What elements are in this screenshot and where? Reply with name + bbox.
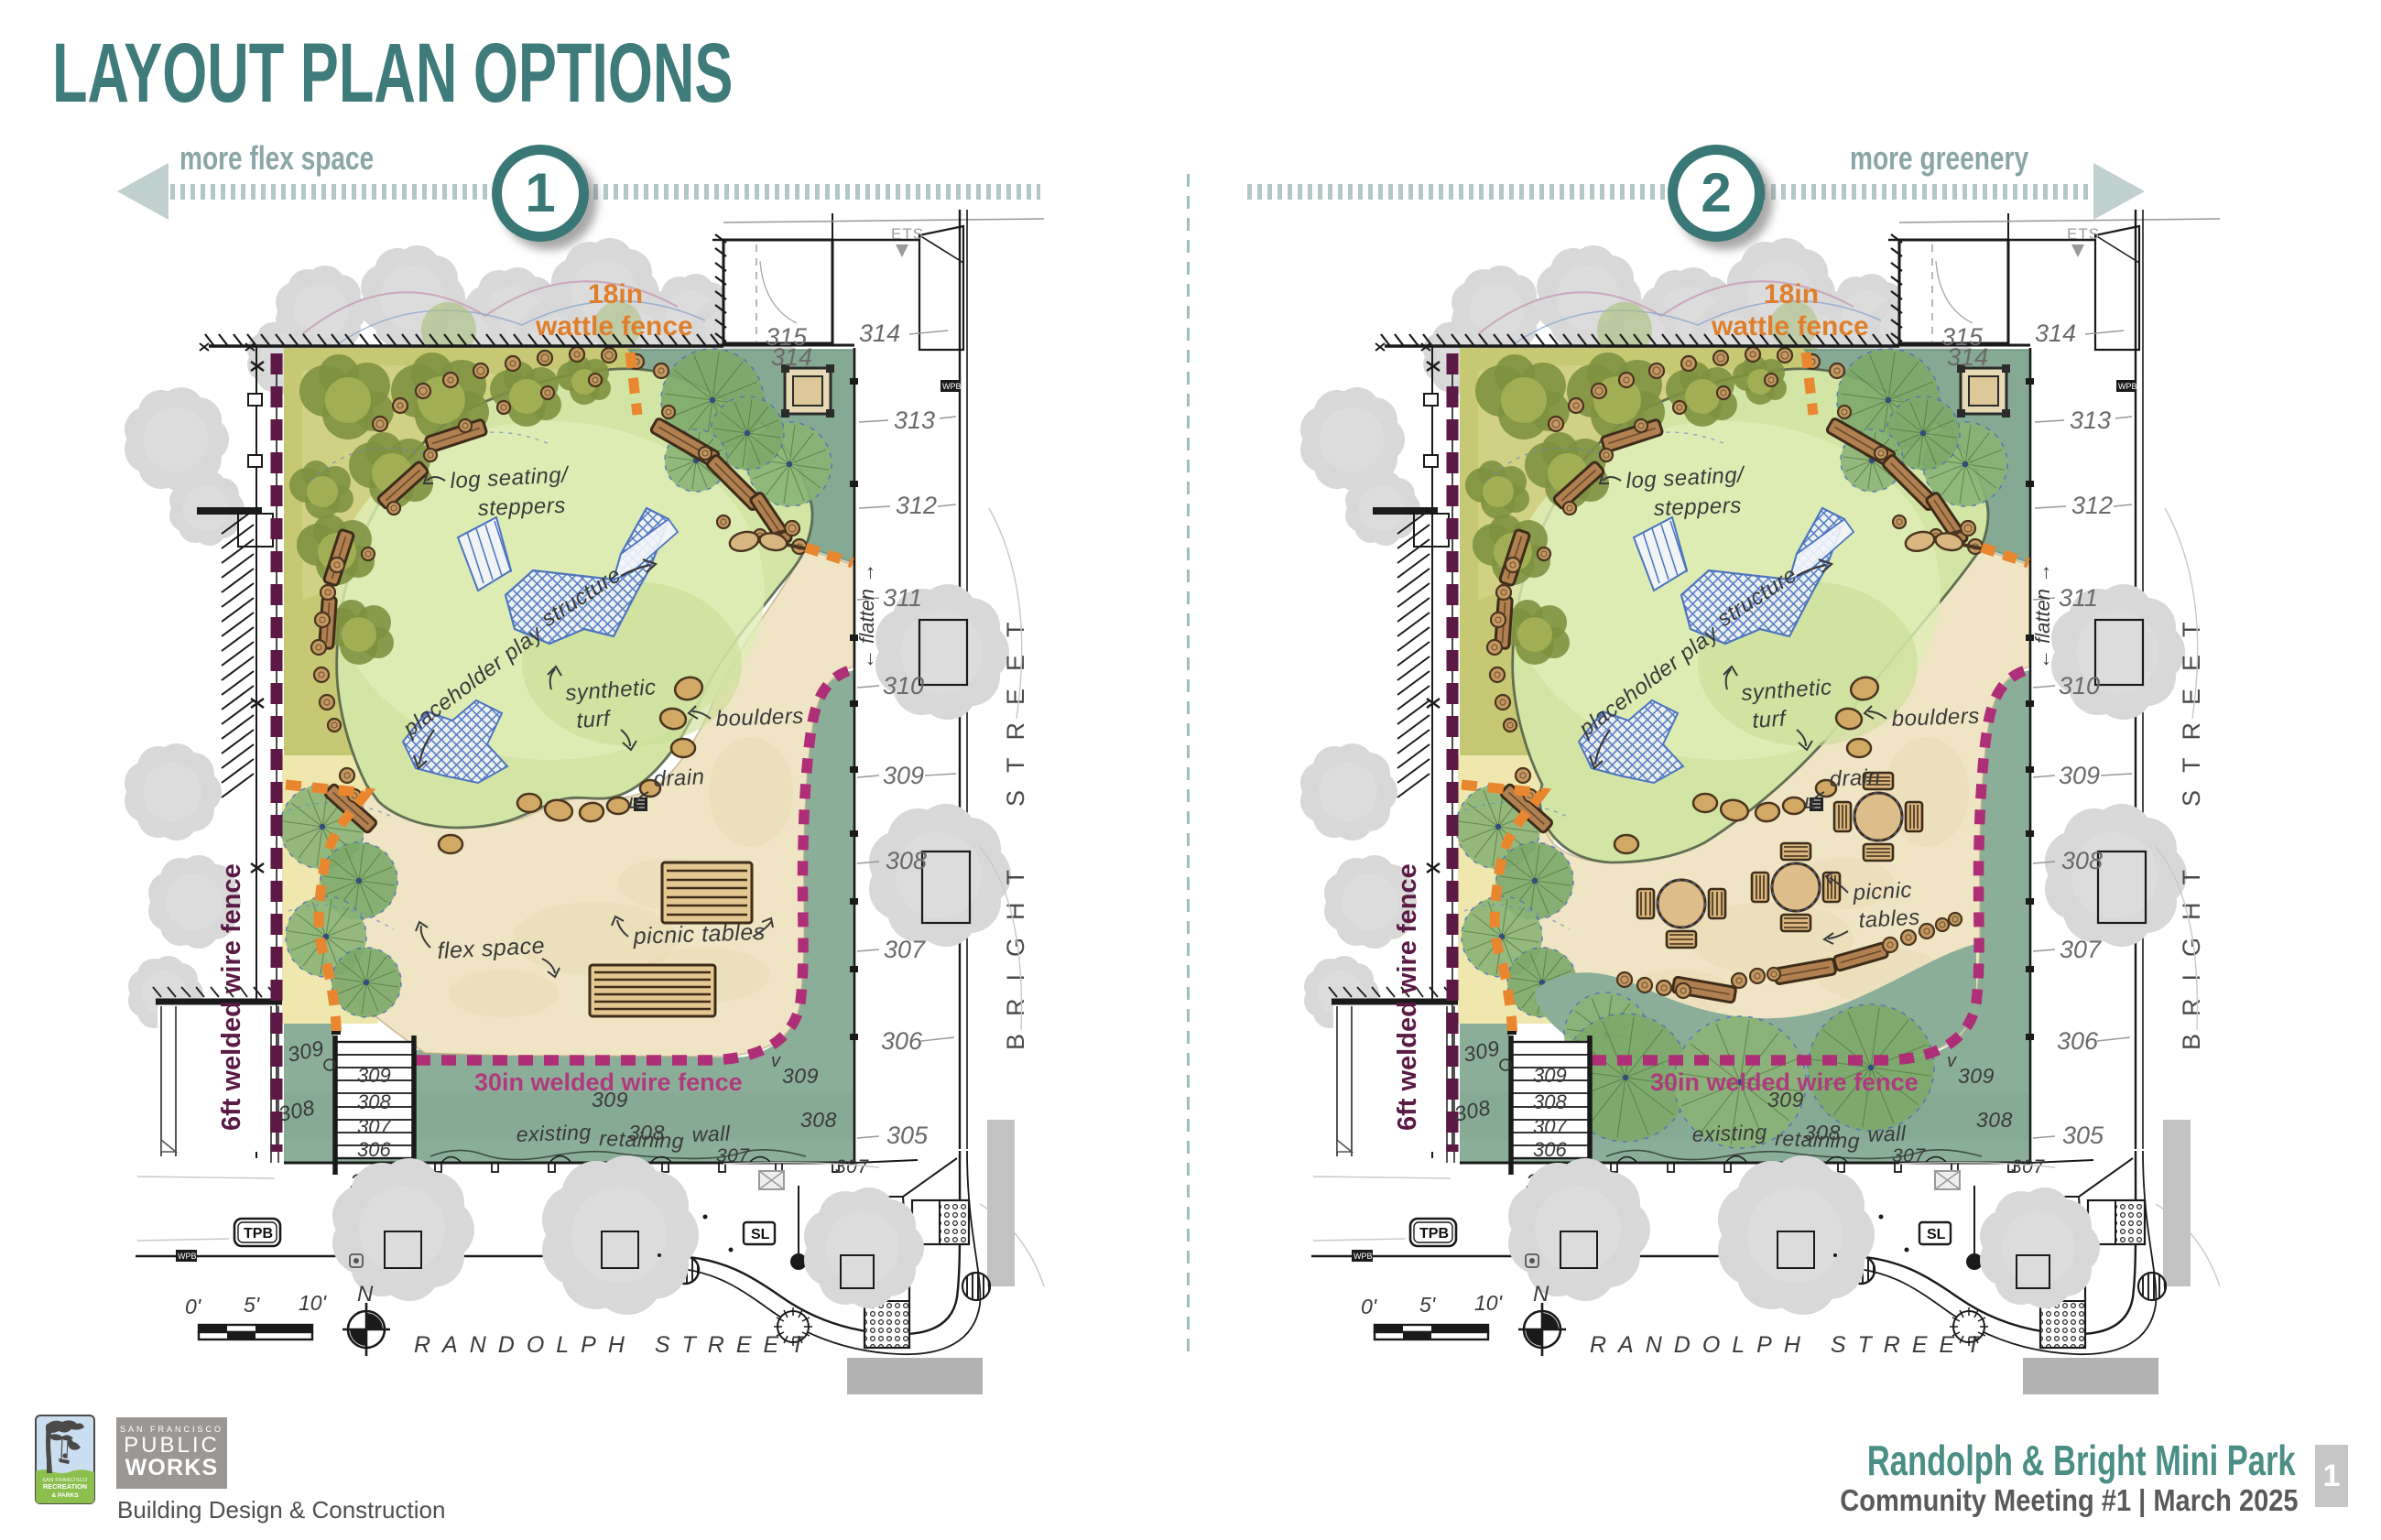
- svg-text:retaining: retaining: [1775, 1126, 1861, 1153]
- svg-text:wattle fence: wattle fence: [1711, 311, 1869, 342]
- svg-text:309: 309: [1958, 1064, 1995, 1088]
- svg-text:0': 0': [1361, 1295, 1378, 1318]
- svg-text:retaining: retaining: [599, 1126, 685, 1153]
- svg-text:turf: turf: [576, 706, 613, 733]
- svg-text:← flatten →: ← flatten →: [855, 563, 878, 669]
- svg-text:308: 308: [800, 1108, 837, 1132]
- svg-text:314: 314: [2035, 320, 2076, 347]
- svg-text:309: 309: [883, 762, 924, 789]
- svg-text:boulders: boulders: [715, 704, 804, 732]
- svg-text:BRIGHT: BRIGHT: [1002, 852, 1029, 1050]
- svg-text:306: 306: [2057, 1027, 2099, 1055]
- svg-text:WPB: WPB: [2118, 382, 2137, 391]
- svg-text:309: 309: [1533, 1064, 1567, 1087]
- svg-text:311: 311: [2059, 584, 2098, 612]
- svg-text:WPB: WPB: [178, 1252, 197, 1261]
- svg-text:steppers: steppers: [1653, 493, 1742, 521]
- svg-text:ETS: ETS: [2067, 225, 2100, 243]
- svg-text:307: 307: [884, 936, 926, 963]
- svg-text:turf: turf: [1752, 706, 1788, 733]
- svg-text:310: 310: [883, 672, 924, 700]
- svg-text:5': 5': [1419, 1293, 1437, 1317]
- svg-text:6ft welded wire fence: 6ft welded wire fence: [217, 863, 246, 1131]
- svg-text:wall: wall: [691, 1122, 731, 1146]
- svg-text:N: N: [357, 1282, 374, 1307]
- svg-text:306: 306: [1533, 1138, 1567, 1161]
- svg-text:RANDOLPH STREET: RANDOLPH STREET: [1590, 1332, 1992, 1358]
- svg-text:v: v: [1947, 1051, 1957, 1071]
- svg-text:picnic tables: picnic tables: [632, 919, 766, 949]
- svg-text:ETS: ETS: [891, 225, 924, 243]
- svg-text:wall: wall: [1867, 1122, 1907, 1146]
- svg-text:WPB: WPB: [942, 382, 962, 391]
- svg-text:STREET: STREET: [1002, 604, 1029, 807]
- svg-text:305: 305: [886, 1122, 929, 1149]
- svg-text:tables: tables: [1858, 906, 1920, 933]
- svg-text:310: 310: [2059, 672, 2100, 700]
- svg-text:wattle fence: wattle fence: [535, 311, 693, 342]
- svg-text:307: 307: [2060, 936, 2102, 963]
- svg-text:STREET: STREET: [2178, 604, 2205, 807]
- svg-text:picnic: picnic: [1852, 878, 1913, 906]
- svg-text:existing: existing: [1691, 1120, 1767, 1146]
- svg-text:& PARKS: & PARKS: [51, 1492, 79, 1499]
- svg-text:10': 10': [1474, 1291, 1504, 1315]
- svg-text:313: 313: [894, 407, 935, 434]
- svg-text:312: 312: [896, 492, 937, 519]
- svg-text:existing: existing: [516, 1120, 592, 1146]
- svg-text:309: 309: [782, 1064, 819, 1088]
- svg-text:307: 307: [2011, 1156, 2045, 1177]
- svg-text:314: 314: [1947, 343, 1988, 371]
- svg-text:← flatten →: ← flatten →: [2031, 563, 2054, 669]
- svg-text:314: 314: [771, 343, 812, 371]
- svg-text:SL: SL: [1927, 1227, 1946, 1242]
- svg-text:18in: 18in: [1764, 279, 1819, 309]
- svg-text:RECREATION: RECREATION: [43, 1482, 87, 1491]
- svg-text:0': 0': [185, 1295, 202, 1318]
- svg-text:307: 307: [357, 1115, 391, 1138]
- svg-text:18in: 18in: [588, 279, 643, 309]
- svg-text:30in welded wire fence: 30in welded wire fence: [474, 1068, 743, 1096]
- svg-text:312: 312: [2071, 492, 2113, 519]
- svg-text:WPB: WPB: [1354, 1252, 1373, 1261]
- svg-text:308: 308: [1976, 1108, 2013, 1132]
- svg-text:v: v: [771, 1051, 781, 1071]
- svg-text:309: 309: [2059, 762, 2100, 789]
- svg-text:drain: drain: [1829, 765, 1881, 792]
- svg-text:10': 10': [299, 1291, 328, 1315]
- svg-text:N: N: [1533, 1282, 1549, 1307]
- svg-text:SL: SL: [751, 1227, 770, 1242]
- svg-text:306: 306: [881, 1027, 923, 1055]
- svg-text:RANDOLPH STREET: RANDOLPH STREET: [414, 1332, 816, 1358]
- svg-text:307: 307: [1533, 1115, 1567, 1138]
- svg-text:6ft welded wire fence: 6ft welded wire fence: [1393, 863, 1422, 1131]
- svg-text:308: 308: [886, 847, 927, 874]
- svg-text:307: 307: [835, 1156, 869, 1177]
- svg-text:boulders: boulders: [1891, 704, 1980, 732]
- svg-text:5': 5': [244, 1293, 261, 1317]
- svg-text:TPB: TPB: [1419, 1226, 1449, 1242]
- svg-text:TPB: TPB: [244, 1226, 273, 1242]
- svg-text:30in welded wire fence: 30in welded wire fence: [1650, 1068, 1919, 1096]
- svg-text:314: 314: [859, 320, 900, 347]
- svg-text:313: 313: [2070, 407, 2111, 434]
- svg-text:306: 306: [357, 1138, 391, 1161]
- svg-text:308: 308: [1533, 1090, 1567, 1113]
- svg-text:309: 309: [357, 1064, 391, 1087]
- svg-text:BRIGHT: BRIGHT: [2178, 852, 2205, 1050]
- svg-text:308: 308: [357, 1090, 391, 1113]
- svg-text:steppers: steppers: [477, 493, 566, 521]
- svg-text:311: 311: [883, 584, 922, 612]
- svg-text:drain: drain: [653, 765, 705, 792]
- svg-text:305: 305: [2062, 1122, 2104, 1149]
- svg-text:308: 308: [2061, 847, 2103, 874]
